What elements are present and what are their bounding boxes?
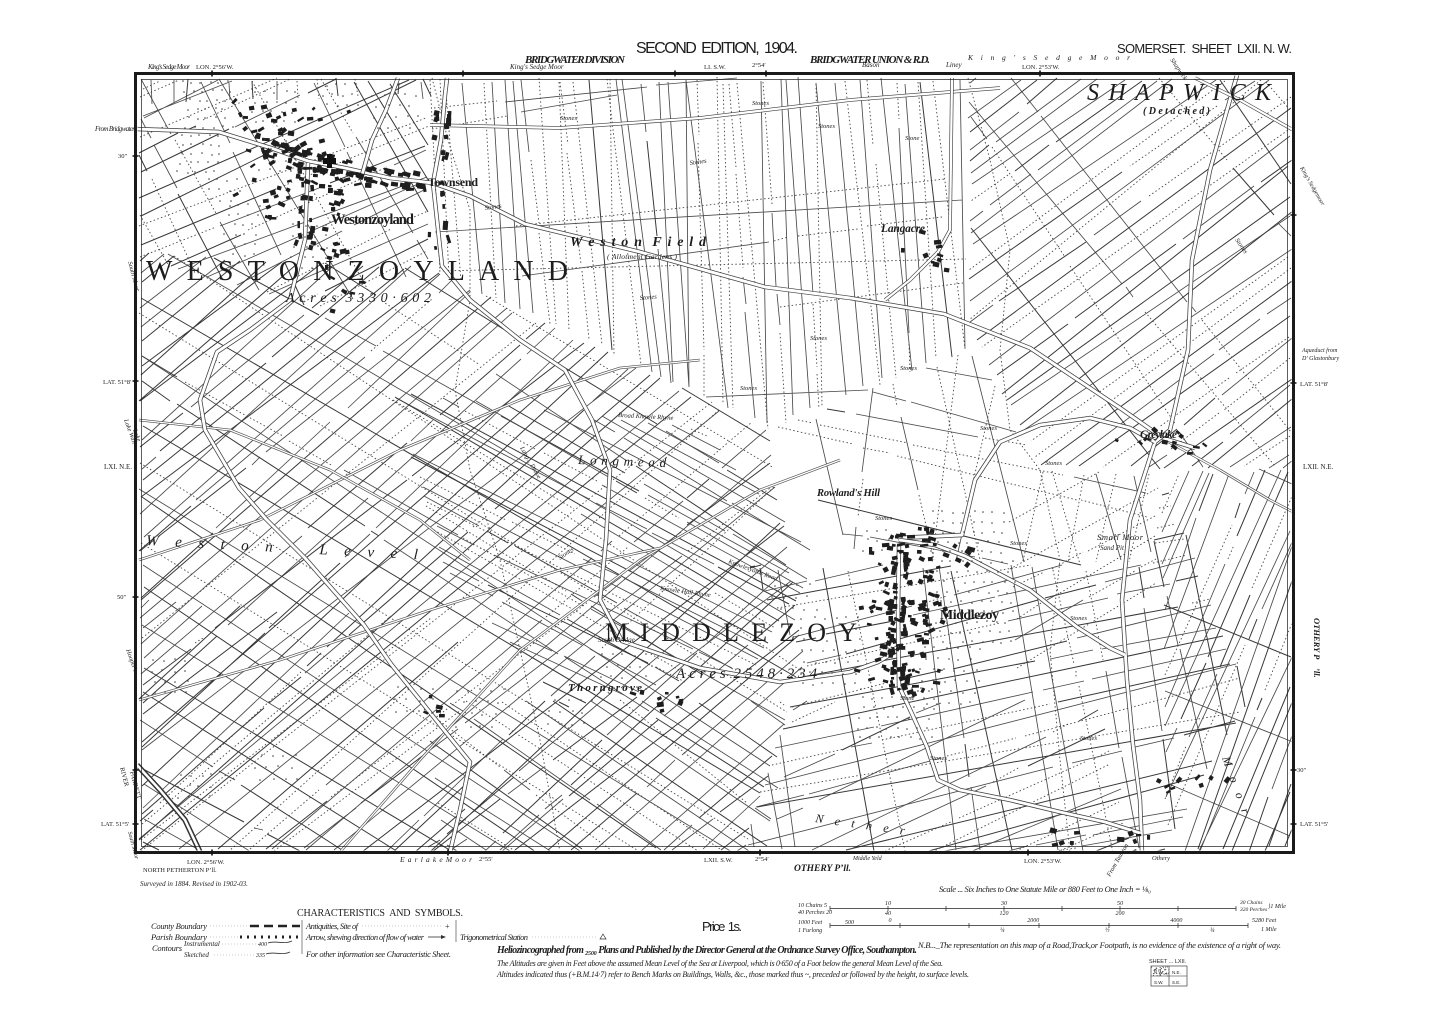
svg-text:Stones: Stones (740, 385, 757, 392)
svg-text:( D e t a c h e d ): ( D e t a c h e d ) (1143, 106, 1210, 117)
svg-text:Middlezoy: Middlezoy (940, 608, 999, 623)
svg-text:LAT. 51°5′: LAT. 51°5′ (101, 821, 130, 828)
svg-text:M I D D L E Z O Y: M I D D L E Z O Y (605, 618, 857, 647)
svg-text:200: 200 (1116, 911, 1125, 917)
svg-text:Altitudes indicated thus (+B.M: Altitudes indicated thus (+B.M.14·7) ref… (496, 970, 969, 979)
svg-text:Stones: Stones (810, 335, 827, 342)
svg-text:LI. S.W.: LI. S.W. (704, 64, 726, 71)
svg-text:Stones: Stones (875, 515, 892, 522)
svg-text:S.E.: S.E. (1172, 980, 1181, 985)
svg-text:Bason: Bason (862, 61, 880, 69)
svg-text:320 Perches: 320 Perches (1239, 907, 1267, 913)
svg-text:LAT. 51°5′: LAT. 51°5′ (1300, 821, 1329, 828)
svg-text:Westonzoyland: Westonzoyland (331, 212, 414, 228)
svg-text:Scale ... Six Inches to One St: Scale ... Six Inches to One Statute Mile… (939, 884, 1151, 894)
svg-text:SOMERSET. SHEET LXII. N. W.: SOMERSET. SHEET LXII. N. W. (1117, 41, 1293, 56)
svg-text:W e s t o n F i e l d: W e s t o n F i e l d (570, 235, 707, 250)
svg-text:0: 0 (889, 918, 892, 924)
svg-text:Townsend: Townsend (428, 175, 478, 189)
svg-text:South Bridge: South Bridge (598, 636, 635, 644)
svg-text:E a r l a k e M o o r: E a r l a k e M o o r (399, 855, 472, 864)
svg-text:2°55′: 2°55′ (479, 856, 493, 863)
svg-text:LXI. N.E.: LXI. N.E. (104, 463, 132, 471)
svg-text:A c r e s 3 3 3 0 · 6 0 2: A c r e s 3 3 3 0 · 6 0 2 (285, 291, 431, 306)
svg-text:½: ½ (1105, 927, 1110, 934)
svg-text:SHEET ... LXII.: SHEET ... LXII. (1149, 959, 1187, 965)
svg-text:LXII. N.E.: LXII. N.E. (1303, 463, 1334, 471)
svg-text:500: 500 (845, 920, 854, 926)
svg-text:5280 Feet: 5280 Feet (1252, 918, 1276, 924)
svg-text:Stone: Stone (900, 695, 915, 702)
svg-text:OTHERY P: OTHERY P (1312, 618, 1322, 660)
svg-text:+: + (445, 922, 450, 931)
svg-text:OTHERY P’ll.: OTHERY P’ll. (794, 864, 851, 874)
svg-text:Contours: Contours (152, 943, 183, 953)
svg-text:D′ Glastonbury: D′ Glastonbury (1301, 356, 1339, 362)
svg-text:10: 10 (885, 901, 891, 907)
svg-text:Langacre: Langacre (880, 223, 925, 235)
svg-text:W E S T O N Z O Y L A N D: W E S T O N Z O Y L A N D (146, 256, 568, 287)
svg-text:From Bridgwater: From Bridgwater (94, 125, 135, 133)
svg-text:400: 400 (258, 941, 267, 948)
svg-text:Sand Pit: Sand Pit (1100, 544, 1125, 552)
svg-text:Middle Yeld: Middle Yeld (852, 856, 883, 862)
svg-text:Stones: Stones (818, 123, 835, 130)
svg-text:335: 335 (255, 953, 265, 959)
svg-text:Antiquities, Site of: Antiquities, Site of (305, 921, 360, 931)
svg-text:40: 40 (885, 910, 891, 917)
svg-text:30″: 30″ (1297, 767, 1307, 774)
svg-text:For other information see Char: For other information see Characteristic… (305, 949, 451, 959)
svg-text:S H A P W I C K: S H A P W I C K (1087, 80, 1273, 106)
svg-text:Stone: Stone (905, 135, 920, 142)
svg-text:LON. 2°56′W.: LON. 2°56′W. (187, 859, 225, 866)
svg-text:30 Chains: 30 Chains (1239, 900, 1262, 906)
svg-text:1000 Feet: 1000 Feet (798, 920, 822, 926)
svg-text:King's Sedge Moor: King's Sedge Moor (147, 63, 190, 71)
svg-text:S.W.: S.W. (1154, 980, 1164, 985)
svg-text:Liney: Liney (945, 61, 962, 69)
svg-text:LAT. 51°8′: LAT. 51°8′ (103, 379, 132, 386)
svg-text:Arrow, shewing direction of fl: Arrow, shewing direction of flow of wate… (305, 932, 425, 942)
svg-text:LAT. 51°8′: LAT. 51°8′ (1300, 381, 1329, 388)
svg-text:LON. 2°56′W.: LON. 2°56′W. (196, 64, 234, 71)
svg-text:( Allotment Gardens ): ( Allotment Gardens ) (607, 252, 678, 261)
svg-text:’ll.: ’ll. (1312, 668, 1322, 678)
svg-text:2°54′: 2°54′ (752, 62, 766, 69)
svg-text:Stones: Stones (1010, 540, 1027, 547)
svg-text:N.W.: N.W. (1154, 970, 1164, 975)
svg-text:LXII. S.W.: LXII. S.W. (704, 857, 733, 864)
svg-text:L o n g m e a d: L o n g m e a d (577, 452, 667, 470)
svg-text:10 Chains 5: 10 Chains 5 (798, 903, 827, 909)
svg-text:County Boundary: County Boundary (151, 921, 207, 931)
svg-text:Surveyed in 1884. Revised in: Surveyed in 1884. Revised in 1902-03. (140, 880, 248, 888)
svg-text:Stones: Stones (1070, 615, 1087, 622)
svg-text:CHARACTERISTICS AND SYMBOLS.: CHARACTERISTICS AND SYMBOLS. (297, 908, 465, 919)
svg-text:A c r e s 2 5 4 8 · 2 3 4: A c r e s 2 5 4 8 · 2 3 4 (675, 666, 818, 682)
svg-text:2000: 2000 (1027, 918, 1039, 924)
svg-text:Price 1s.: Price 1s. (702, 919, 742, 934)
svg-text:30″: 30″ (118, 153, 128, 160)
svg-text:Trigonometrical Station: Trigonometrical Station (460, 932, 528, 942)
svg-text:Stones: Stones (1080, 735, 1097, 742)
svg-text:Greylake: Greylake (1140, 429, 1177, 441)
svg-text:40 Perches 20: 40 Perches 20 (798, 909, 832, 916)
svg-text:50″: 50″ (117, 594, 127, 601)
svg-text:Stones: Stones (930, 755, 947, 762)
svg-text:The Altitudes are given in Fee: The Altitudes are given in Feet above th… (497, 959, 943, 968)
svg-text:30: 30 (1000, 901, 1007, 907)
svg-text:4000: 4000 (1170, 917, 1182, 924)
svg-text:¼: ¼ (1000, 928, 1005, 934)
svg-text:Heliozincographed from ₂₅₀₀ Pl: Heliozincographed from ₂₅₀₀ Plans and Pu… (496, 945, 917, 956)
svg-text:SECOND EDITION, 1904.: SECOND EDITION, 1904. (636, 40, 800, 57)
svg-text:Instrumental: Instrumental (183, 940, 220, 948)
svg-text:Stones: Stones (752, 100, 769, 107)
svg-text:}1 Mile: }1 Mile (1268, 904, 1286, 910)
svg-text:King's Sedge Moor: King's Sedge Moor (509, 63, 564, 71)
svg-text:Stones: Stones (980, 425, 997, 432)
svg-text:¾: ¾ (1210, 928, 1215, 934)
svg-text:Rowland's Hill: Rowland's Hill (816, 488, 880, 499)
svg-text:N.E.: N.E. (1172, 970, 1181, 975)
svg-text:LON. 2°53′W.: LON. 2°53′W. (1022, 64, 1060, 71)
svg-text:T h o r n g r o v e: T h o r n g r o v e (568, 682, 642, 694)
svg-text:Small Moor: Small Moor (1097, 532, 1144, 542)
svg-text:Stones: Stones (900, 365, 917, 372)
svg-text:Stones: Stones (560, 115, 577, 122)
svg-text:1 Mile: 1 Mile (1261, 927, 1277, 933)
svg-text:Sketched: Sketched (184, 951, 209, 959)
svg-text:Aqueduct from: Aqueduct from (1301, 347, 1338, 354)
svg-text:Stones: Stones (1045, 460, 1062, 467)
svg-text:NORTH PETHERTON P’ll.: NORTH PETHERTON P’ll. (143, 867, 217, 874)
svg-text:2°54′: 2°54′ (755, 856, 769, 863)
svg-text:N.B..._The representation on t: N.B..._The representation on this map of… (917, 940, 1281, 950)
svg-text:Othery: Othery (1152, 855, 1170, 862)
svg-text:LON. 2°53′W.: LON. 2°53′W. (1024, 858, 1062, 865)
svg-text:120: 120 (1000, 911, 1009, 917)
svg-text:1 Furlong: 1 Furlong (798, 928, 822, 934)
svg-text:50: 50 (1117, 901, 1123, 907)
